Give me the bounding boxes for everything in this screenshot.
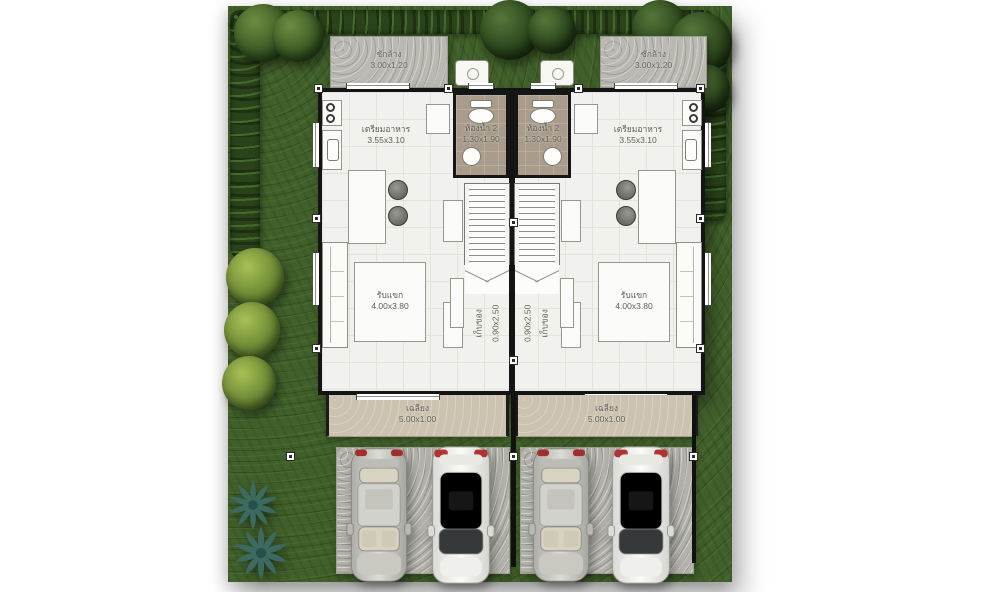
sofa <box>322 242 348 348</box>
sink-icon <box>543 147 562 166</box>
kitchen-size: 3.55x3.10 <box>330 135 442 146</box>
burner-icon <box>689 103 698 112</box>
stair-cabinet <box>443 200 463 242</box>
staircase <box>515 184 559 264</box>
bathroom-size: 1.30x1.90 <box>504 134 582 145</box>
survey-marker <box>689 452 698 461</box>
porch-left: เฉลียง 5.00x1.00 <box>326 395 509 437</box>
survey-marker <box>314 84 323 93</box>
boundary-fence-right <box>692 395 696 563</box>
survey-marker <box>312 344 321 353</box>
survey-marker <box>509 452 518 461</box>
storage-label: เก็บของ <box>474 293 485 353</box>
toilet-tank <box>470 100 492 108</box>
window <box>614 83 678 89</box>
bathroom: ห้องน้ำ 2 1.30x1.90 <box>453 92 509 178</box>
stove <box>682 100 702 126</box>
laundry-label: ซักล้าง <box>331 49 447 60</box>
tree <box>272 10 324 62</box>
palm-plant <box>230 522 292 584</box>
stair-cabinet <box>561 200 581 242</box>
staircase <box>465 184 509 264</box>
porch-size: 5.00x1.00 <box>329 414 506 425</box>
living-label: รับแขก <box>598 290 670 301</box>
toilet-icon <box>530 108 556 124</box>
survey-marker <box>696 84 705 93</box>
tree <box>528 6 576 54</box>
laundry-pad-left: ซักล้าง 3.00x1.20 <box>330 36 448 88</box>
survey-marker <box>286 452 295 461</box>
site-ground: ซักล้าง 3.00x1.20 ซักล้าง 3.00x1.20 <box>228 6 732 582</box>
car-white-suv <box>606 444 676 586</box>
survey-marker <box>696 344 705 353</box>
kitchen-size: 3.55x3.10 <box>582 135 694 146</box>
tv-cabinet <box>450 278 464 328</box>
window <box>313 122 319 168</box>
chair <box>616 206 636 226</box>
unit-right: ห้องน้ำ 2 1.30x1.90 <box>515 92 702 391</box>
survey-marker <box>574 84 583 93</box>
unit-left: ห้องน้ำ 2 1.30x1.90 <box>322 92 509 391</box>
burner-icon <box>326 103 335 112</box>
stair-direction <box>515 264 559 294</box>
shrub <box>222 356 276 410</box>
burner-icon <box>326 114 335 123</box>
living-size: 4.00x3.80 <box>598 301 670 312</box>
kitchen-label: เตรียมอาหาร <box>330 124 442 135</box>
storage-size: 0.90x2.50 <box>523 293 534 353</box>
window <box>313 252 319 306</box>
stove <box>322 100 342 126</box>
chair <box>388 180 408 200</box>
bathroom: ห้องน้ำ 2 1.30x1.90 <box>515 92 571 178</box>
survey-marker <box>444 84 453 93</box>
kitchen-label: เตรียมอาหาร <box>582 124 694 135</box>
sofa <box>676 242 702 348</box>
living-size: 4.00x3.80 <box>354 301 426 312</box>
living-label: รับแขก <box>354 290 426 301</box>
porch-right: เฉลียง 5.00x1.00 <box>515 395 698 437</box>
laundry-pad-right: ซักล้าง 3.00x1.20 <box>600 36 707 88</box>
window <box>705 252 711 306</box>
survey-marker <box>509 218 518 227</box>
chair <box>388 206 408 226</box>
porch-label: เฉลียง <box>329 403 506 414</box>
dining-table <box>638 170 676 244</box>
laundry-size: 3.00x1.20 <box>331 60 447 71</box>
toilet-tank <box>532 100 554 108</box>
window <box>705 122 711 168</box>
survey-marker <box>696 214 705 223</box>
stair-direction <box>465 264 509 294</box>
laundry-size: 3.00x1.20 <box>601 60 706 71</box>
porch-size: 5.00x1.00 <box>518 414 695 425</box>
storage-label: เก็บของ <box>540 293 551 353</box>
sink-icon <box>462 147 481 166</box>
window <box>468 83 494 89</box>
burner-icon <box>689 114 698 123</box>
survey-marker <box>312 214 321 223</box>
toilet-icon <box>468 108 494 124</box>
window <box>530 83 556 89</box>
shrub <box>224 302 280 358</box>
floor-plan-canvas: ซักล้าง 3.00x1.20 ซักล้าง 3.00x1.20 <box>0 0 1000 592</box>
laundry-label: ซักล้าง <box>601 49 706 60</box>
survey-marker <box>509 356 518 365</box>
sliding-door <box>356 394 440 400</box>
dividing-fence <box>511 395 516 567</box>
car-silver-sedan <box>528 446 594 584</box>
window <box>346 83 410 89</box>
shrub <box>226 248 284 306</box>
car-white-suv <box>426 444 496 586</box>
building-footprint: ห้องน้ำ 2 1.30x1.90 <box>318 88 705 395</box>
car-silver-sedan <box>346 446 412 584</box>
porch-label: เฉลียง <box>518 403 695 414</box>
bathroom-label: ห้องน้ำ 2 <box>504 123 582 134</box>
storage-size: 0.90x2.50 <box>491 293 502 353</box>
tv-cabinet <box>560 278 574 328</box>
chair <box>616 180 636 200</box>
dining-table <box>348 170 386 244</box>
